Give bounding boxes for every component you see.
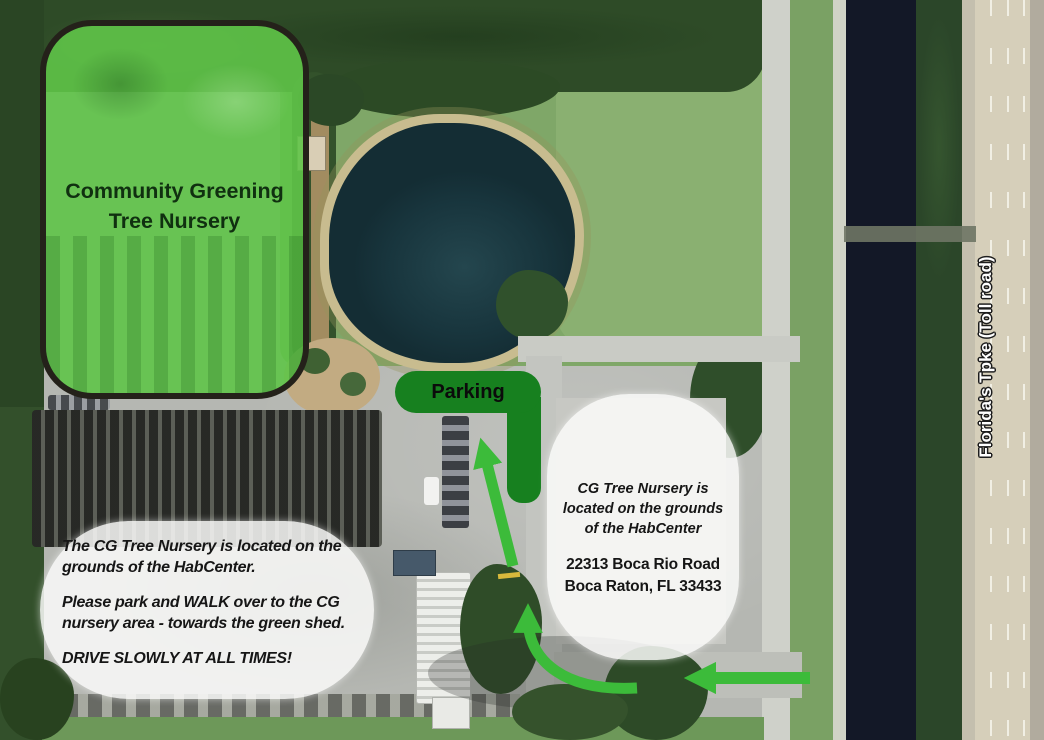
instruction-line: DRIVE SLOWLY AT ALL TIMES!: [62, 648, 366, 669]
nursery-overlay-label-line2: Tree Nursery: [46, 206, 303, 236]
address-line: 22313 Boca Rio Road: [547, 554, 739, 576]
parking-callout-bar: Parking: [395, 371, 541, 413]
nursery-overlay-label-line1: Community Greening: [46, 176, 303, 206]
highway-shoulder: [962, 0, 975, 740]
grass-field-light-patch: [556, 48, 772, 348]
lane-marking: [1007, 0, 1009, 740]
instruction-line: Please park and WALK over to the CG: [62, 592, 366, 613]
spacer: [62, 634, 366, 648]
instruction-line: nursery area - towards the green shed.: [62, 613, 366, 634]
access-road-vertical: [762, 0, 790, 740]
small-building: [432, 697, 470, 729]
instruction-line: The CG Tree Nursery is located on the: [62, 536, 366, 557]
address-note-line: of the HabCenter: [547, 519, 739, 539]
address-note-line: located on the grounds: [547, 499, 739, 519]
spacer: [547, 539, 739, 554]
parking-callout: Parking: [395, 371, 541, 503]
garden-trees: [340, 372, 366, 396]
address-note-line: CG Tree Nursery is: [547, 479, 739, 499]
green-shed: [393, 550, 436, 576]
instruction-line: grounds of the HabCenter.: [62, 557, 366, 578]
canal: [846, 0, 916, 740]
nursery-highlight-overlay: Community Greening Tree Nursery: [40, 20, 309, 399]
info-bubble-instructions: The CG Tree Nursery is located on the gr…: [40, 521, 374, 699]
highway-name-label: Florida's Tpke (Toll road): [976, 237, 1000, 477]
parking-label: Parking: [431, 381, 504, 404]
canal-bridge: [844, 226, 976, 242]
highway-far-lanes: [1030, 0, 1044, 740]
canal-service-path: [833, 0, 846, 740]
map-canvas: Community Greening Tree Nursery Parking …: [0, 0, 1044, 740]
overlay-row-texture: [46, 236, 303, 396]
address-line: Boca Raton, FL 33433: [547, 576, 739, 598]
overlay-texture: [56, 36, 309, 156]
info-bubble-address: CG Tree Nursery is located on the ground…: [547, 394, 739, 660]
canal-tree-line: [916, 0, 962, 740]
tree-band-left: [0, 0, 44, 740]
nursery-overlay-label: Community Greening Tree Nursery: [46, 176, 303, 236]
spacer: [62, 578, 366, 592]
lane-marking: [1023, 0, 1025, 740]
